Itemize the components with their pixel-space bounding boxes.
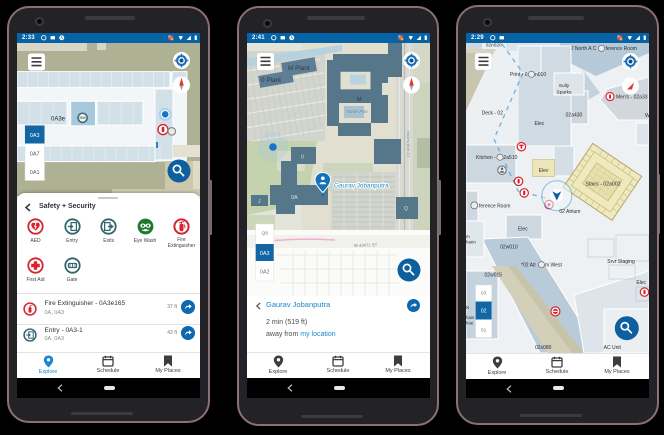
svg-text:Print - 0: Print - 0	[510, 72, 528, 78]
svg-text:ference Room: ference Room	[479, 203, 510, 209]
svg-text:0A2: 0A2	[260, 270, 270, 276]
svg-text:harin: harin	[466, 240, 476, 245]
svg-text:0A: 0A	[291, 195, 298, 201]
svg-text:hais: hais	[466, 315, 475, 320]
svg-text:02 Atrium: 02 Atrium	[559, 209, 580, 215]
svg-text:0 Plant: 0 Plant	[261, 77, 281, 84]
svg-text:M Plant: M Plant	[288, 65, 310, 72]
svg-text:02: 02	[481, 309, 487, 315]
svg-text:01: 01	[481, 328, 487, 334]
svg-text:Men's - 02a33: Men's - 02a33	[616, 95, 648, 101]
svg-text:ference Room: ference Room	[606, 46, 637, 52]
svg-text:Sully: Sully	[559, 83, 570, 89]
svg-text:N: N	[466, 305, 469, 310]
svg-text:Elec: Elec	[518, 226, 528, 232]
svg-text:Q: Q	[404, 206, 408, 212]
svg-text:0A1: 0A1	[30, 170, 40, 176]
svg-text:n010: n010	[535, 72, 546, 78]
svg-text:W: W	[645, 113, 649, 119]
svg-text:Stairs - 02a002: Stairs - 02a002	[585, 182, 620, 188]
svg-text:Deck - 02: Deck - 02	[482, 111, 504, 117]
svg-text:0: 0	[301, 155, 304, 161]
svg-text:02w015: 02w015	[485, 273, 503, 279]
svg-text:0A3: 0A3	[260, 251, 270, 257]
svg-text:m: m	[466, 234, 470, 239]
svg-text:Q8: Q8	[261, 231, 268, 237]
svg-text:02s080: 02s080	[535, 345, 552, 351]
svg-text:Gaurav Jobanputra: Gaurav Jobanputra	[334, 183, 389, 190]
svg-text:0A7: 0A7	[30, 152, 40, 158]
svg-text:0A3: 0A3	[30, 133, 40, 139]
svg-text:hoe: hoe	[466, 321, 474, 326]
svg-text:HIGHVIEW ST: HIGHVIEW ST	[406, 131, 411, 158]
svg-text:Elec: Elec	[535, 121, 545, 127]
svg-text:W 43471 ST: W 43471 ST	[354, 242, 378, 248]
svg-text:m West: m West	[545, 262, 562, 268]
svg-text:Elec: Elec	[636, 280, 646, 286]
svg-text:Sparks: Sparks	[557, 90, 573, 96]
svg-text:Srvr Staging: Srvr Staging	[607, 259, 635, 265]
svg-text:M: M	[357, 97, 362, 103]
svg-text:AC Unit: AC Unit	[604, 345, 622, 351]
svg-text:02w010: 02w010	[500, 244, 518, 250]
svg-text:02a430: 02a430	[566, 113, 583, 119]
svg-text:2a510: 2a510	[504, 155, 518, 161]
svg-text:03: 03	[481, 291, 487, 297]
svg-text:0A3e: 0A3e	[51, 117, 66, 123]
svg-text:Turtle Pon: Turtle Pon	[346, 109, 368, 115]
svg-text:*02 Atr: *02 Atr	[521, 262, 536, 268]
svg-text:Elev: Elev	[539, 168, 549, 174]
svg-text:Kitchen -: Kitchen -	[476, 155, 496, 161]
svg-text:02n020: 02n020	[486, 43, 502, 49]
